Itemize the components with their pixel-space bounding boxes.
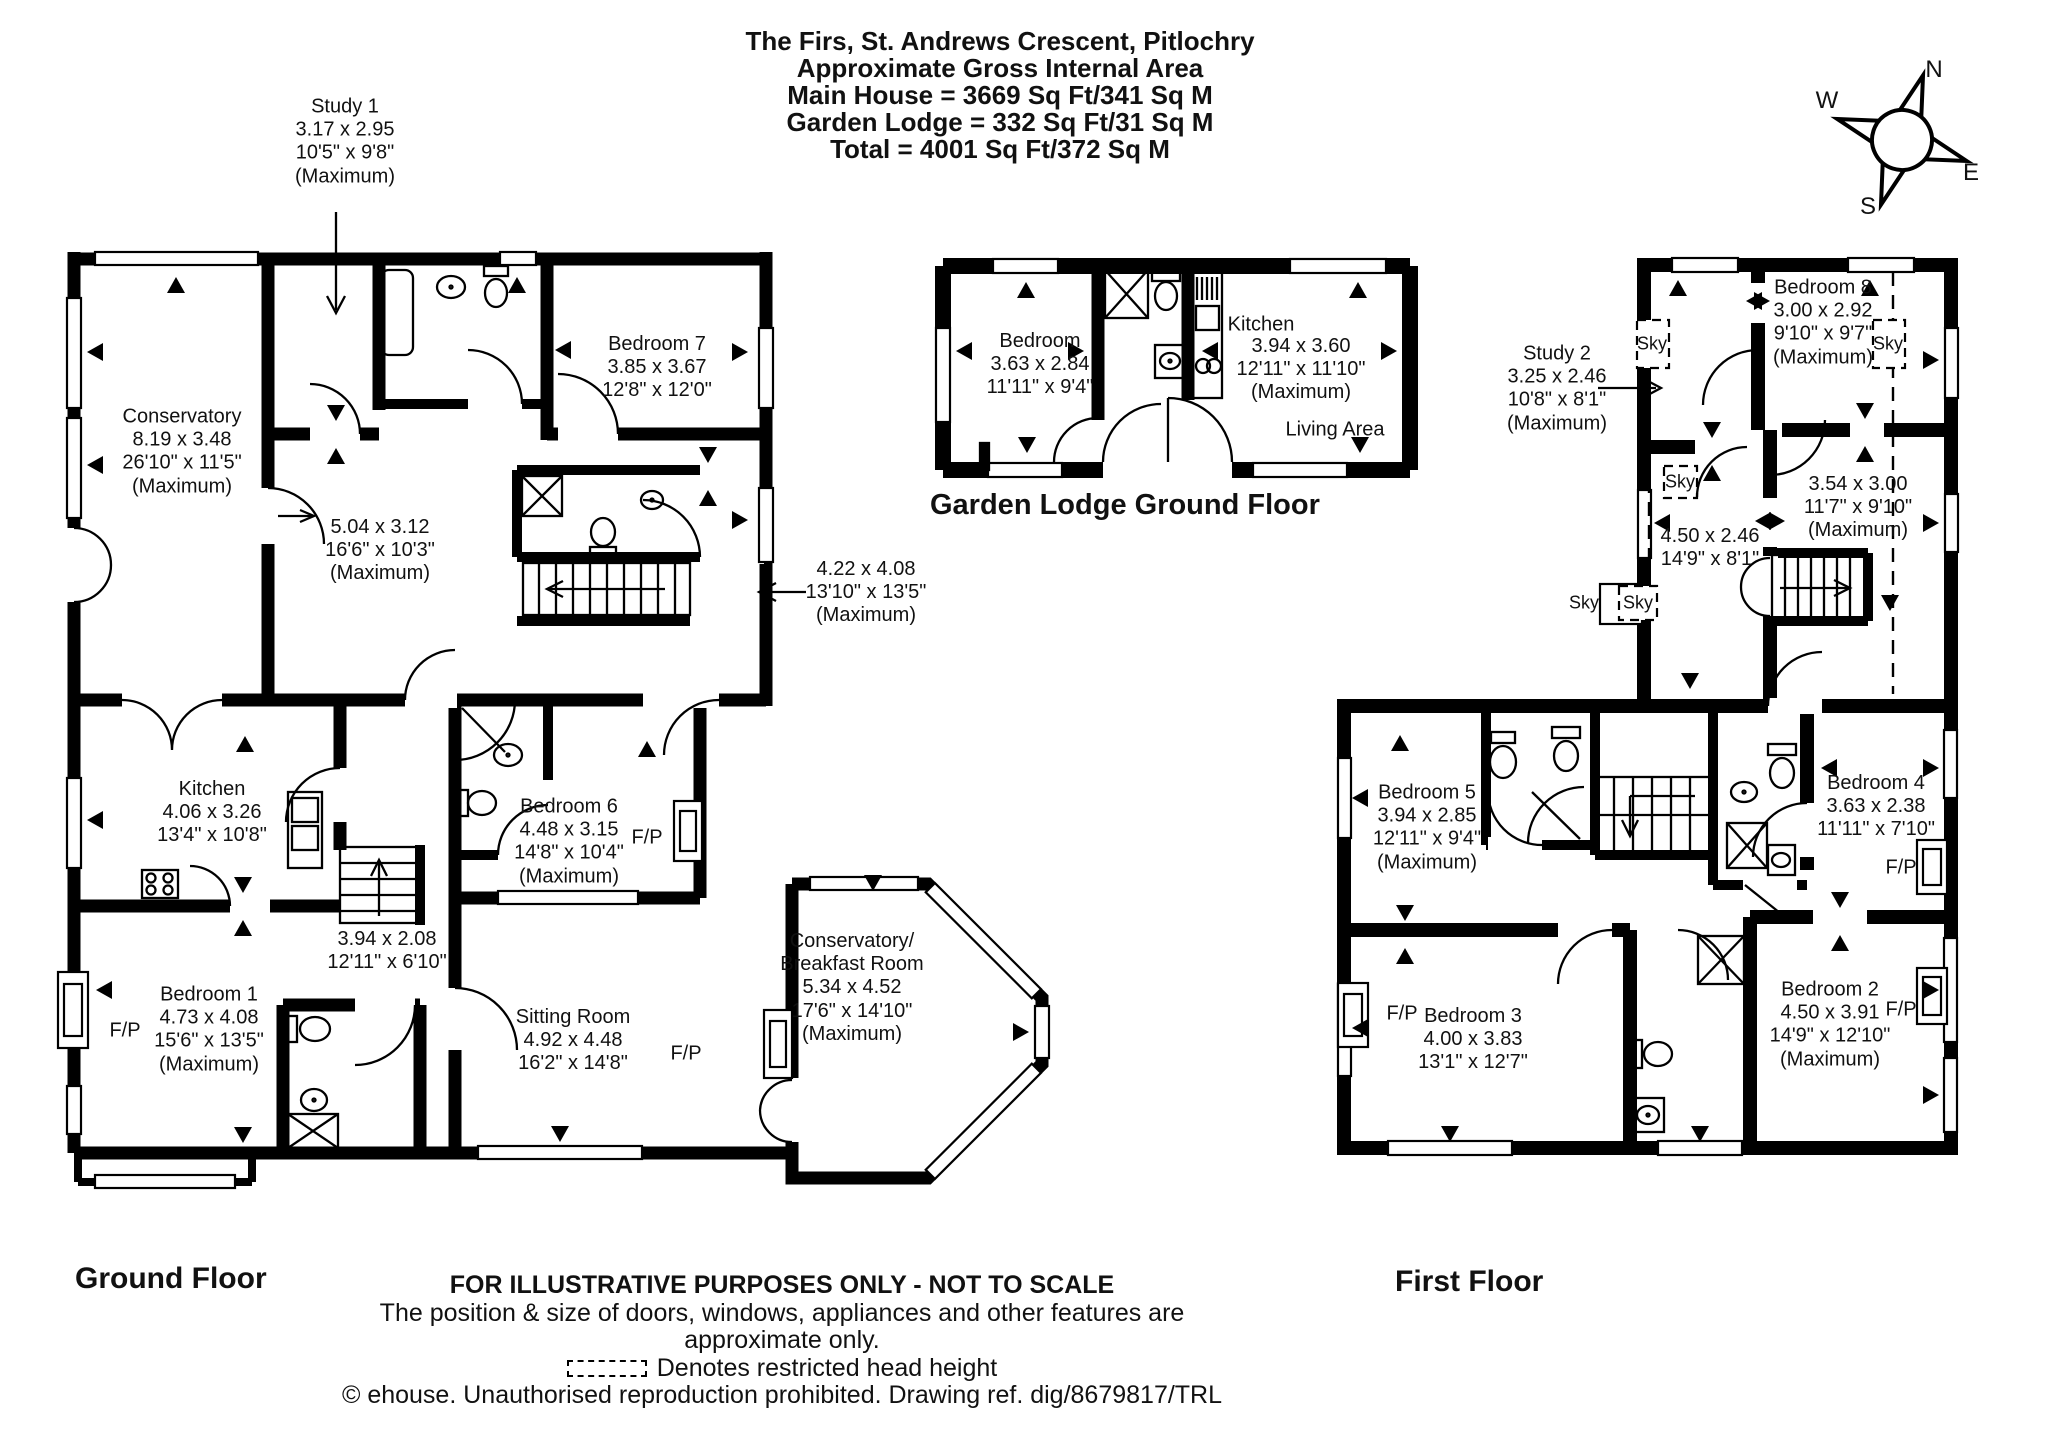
garden-lodge-title: Garden Lodge Ground Floor xyxy=(930,489,1320,522)
room-label-study-2: Study 2 3.25 x 2.46 10'8" x 8'1" (Maximu… xyxy=(1507,343,1607,436)
footer: FOR ILLUSTRATIVE PURPOSES ONLY - NOT TO … xyxy=(332,1272,1232,1410)
room-label-5-04: 5.04 x 3.12 16'6" x 10'3" (Maximum) xyxy=(325,516,435,586)
room-label-lodge-kitchen: Kitchen xyxy=(1228,313,1295,336)
legend-restricted-head-height: Denotes restricted head height xyxy=(332,1355,1232,1383)
fireplace-label-bedroom-1: F/P xyxy=(109,1020,140,1043)
compass-label-s: S xyxy=(1860,193,1876,221)
room-label-bedroom-2: Bedroom 2 4.50 x 3.91 14'9" x 12'10" (Ma… xyxy=(1770,979,1891,1072)
room-label-bedroom-8: Bedroom 8 3.00 x 2.92 9'10" x 9'7" (Maxi… xyxy=(1773,277,1873,370)
skylight-label-3: Sky xyxy=(1665,472,1695,493)
room-label-sitting-room: Sitting Room 4.92 x 4.48 16'2" x 14'8" xyxy=(516,1006,631,1076)
restricted-head-height-swatch xyxy=(567,1360,647,1377)
area-total: Total = 4001 Sq Ft/372 Sq M xyxy=(560,136,1440,163)
skylight-label-1: Sky xyxy=(1637,334,1667,355)
header: The Firs, St. Andrews Crescent, Pitlochr… xyxy=(560,28,1440,163)
room-label-4-50: 4.50 x 2.46 14'9" x 8'1" xyxy=(1661,525,1760,571)
ground-floor-title: Ground Floor xyxy=(75,1262,267,1296)
floorplan-page: The Firs, St. Andrews Crescent, Pitlochr… xyxy=(0,0,2048,1447)
room-label-bedroom-1: Bedroom 1 4.73 x 4.08 15'6" x 13'5" (Max… xyxy=(154,984,264,1077)
room-label-conservatory: Conservatory 8.19 x 3.48 26'10" x 11'5" … xyxy=(122,406,241,499)
room-label-4-22: 4.22 x 4.08 13'10" x 13'5" (Maximum) xyxy=(806,558,927,628)
room-label-living-area: Living Area xyxy=(1286,418,1385,441)
compass-icon xyxy=(1816,54,1987,225)
fireplace-label-bedroom-2: F/P xyxy=(1885,999,1916,1022)
page-title: The Firs, St. Andrews Crescent, Pitlochr… xyxy=(560,28,1440,55)
compass-label-e: E xyxy=(1963,159,1979,187)
skylight-label-4: Sky xyxy=(1569,593,1599,614)
skylight-label-5: Sky xyxy=(1623,593,1653,614)
room-label-3-54: 3.54 x 3.00 11'7" x 9'10" (Maximum) xyxy=(1804,473,1912,543)
floorplan-linework xyxy=(0,0,2048,1447)
room-label-bedroom-3: Bedroom 3 4.00 x 3.83 13'1" x 12'7" xyxy=(1418,1005,1528,1075)
room-label-bedroom-6: Bedroom 6 4.48 x 3.15 14'8" x 10'4" (Max… xyxy=(514,796,624,889)
fireplace-label-bedroom-6: F/P xyxy=(631,827,662,850)
footer-copyright: © ehouse. Unauthorised reproduction proh… xyxy=(332,1382,1232,1410)
room-label-kitchen: Kitchen 4.06 x 3.26 13'4" x 10'8" xyxy=(157,778,267,848)
compass-label-n: N xyxy=(1925,56,1942,84)
fireplace-label-bedroom-3: F/P xyxy=(1386,1003,1417,1026)
room-label-lodge-bedroom: Bedroom 3.63 x 2.84 11'11" x 9'4" xyxy=(987,330,1094,400)
room-label-hall: 3.94 x 2.08 12'11" x 6'10" xyxy=(327,928,446,974)
area-garden-lodge: Garden Lodge = 332 Sq Ft/31 Sq M xyxy=(560,109,1440,136)
skylight-label-2: Sky xyxy=(1873,334,1903,355)
room-label-bedroom-4: Bedroom 4 3.63 x 2.38 11'11" x 7'10" xyxy=(1817,772,1935,842)
fireplace-label-bedroom-4: F/P xyxy=(1885,857,1916,880)
compass-label-w: W xyxy=(1816,87,1839,115)
room-label-bedroom-7: Bedroom 7 3.85 x 3.67 12'8" x 12'0" xyxy=(602,333,712,403)
footer-disclaimer-scale: FOR ILLUSTRATIVE PURPOSES ONLY - NOT TO … xyxy=(332,1272,1232,1300)
header-subtitle: Approximate Gross Internal Area xyxy=(560,55,1440,82)
footer-disclaimer-approx: The position & size of doors, windows, a… xyxy=(332,1300,1232,1355)
first-floor-title: First Floor xyxy=(1395,1265,1543,1299)
area-main-house: Main House = 3669 Sq Ft/341 Sq M xyxy=(560,82,1440,109)
fireplace-label-sitting-room: F/P xyxy=(670,1043,701,1066)
room-label-bedroom-5: Bedroom 5 3.94 x 2.85 12'11" x 9'4" (Max… xyxy=(1373,782,1481,875)
room-label-lodge-kitchen-dims: 3.94 x 3.60 12'11" x 11'10" (Maximum) xyxy=(1237,335,1366,405)
room-label-study-1: Study 1 3.17 x 2.95 10'5" x 9'8" (Maximu… xyxy=(295,96,395,189)
room-label-breakfast-room: Conservatory/ Breakfast Room 5.34 x 4.52… xyxy=(780,930,923,1046)
